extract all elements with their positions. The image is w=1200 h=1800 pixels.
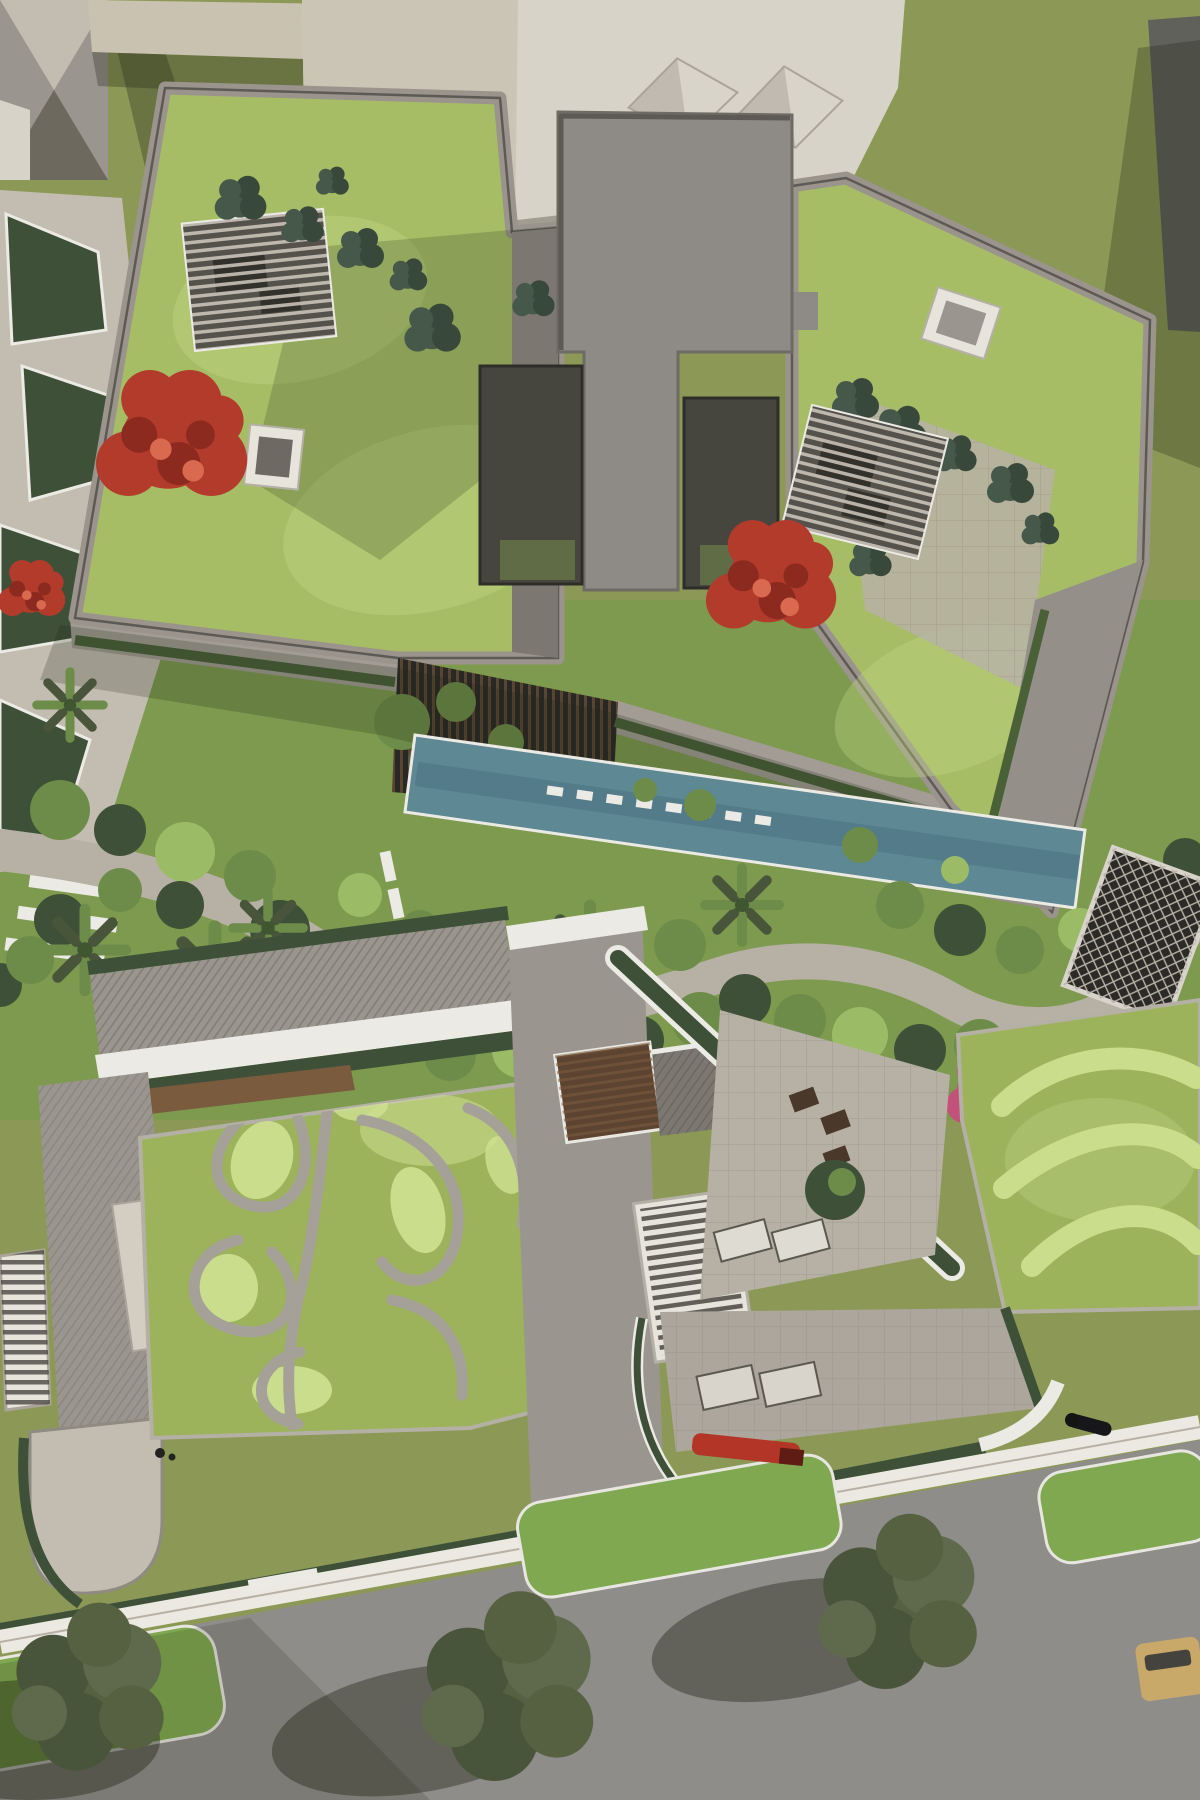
rounded-corner-volume	[23, 1418, 162, 1604]
neighbor-beige-box	[88, 0, 338, 96]
roof-skylight-box	[244, 424, 304, 489]
parked-car	[1134, 1636, 1200, 1702]
render-canvas	[0, 0, 1200, 1800]
aerial-architectural-render	[0, 0, 1200, 1800]
leaf-pattern-roof	[140, 1082, 548, 1438]
sunken-courtyard	[480, 366, 582, 584]
wood-roof-deck	[555, 1042, 662, 1143]
swirl-roof	[958, 1000, 1200, 1312]
skylight-grill	[0, 1250, 50, 1410]
